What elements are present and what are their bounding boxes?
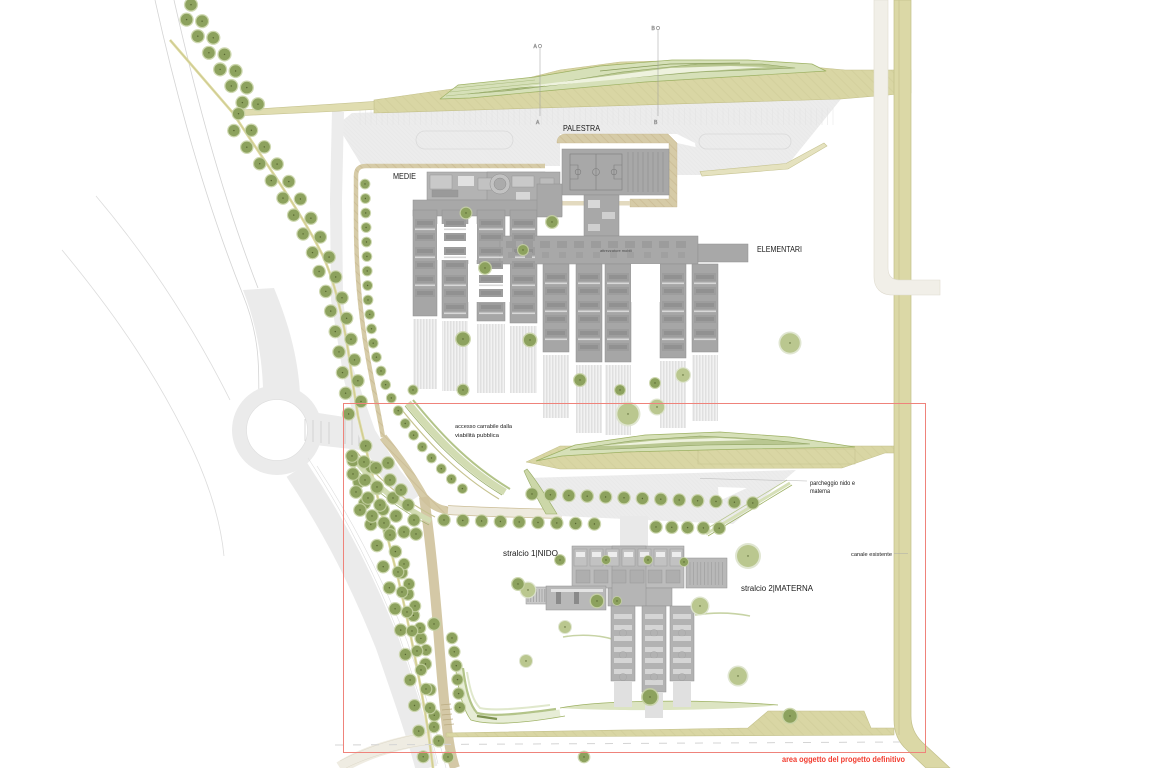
svg-text:stralcio 1|NIDO: stralcio 1|NIDO (503, 549, 558, 558)
svg-text:parcheggio nido e: parcheggio nido e (810, 481, 856, 487)
svg-text:ELEMENTARI: ELEMENTARI (757, 245, 802, 254)
svg-text:area oggetto del progetto defi: area oggetto del progetto definitivo (782, 755, 905, 764)
svg-text:MEDIE: MEDIE (393, 172, 416, 181)
svg-text:materna: materna (810, 489, 831, 495)
svg-text:PALESTRA: PALESTRA (563, 124, 601, 133)
svg-text:accesso carrabile dalla: accesso carrabile dalla (455, 424, 513, 430)
svg-text:canale esistente: canale esistente (851, 552, 892, 558)
svg-text:attrezzature mobili: attrezzature mobili (600, 248, 632, 253)
svg-text:stralcio 2|MATERNA: stralcio 2|MATERNA (741, 584, 814, 593)
svg-text:viabilità pubblica: viabilità pubblica (455, 433, 500, 439)
